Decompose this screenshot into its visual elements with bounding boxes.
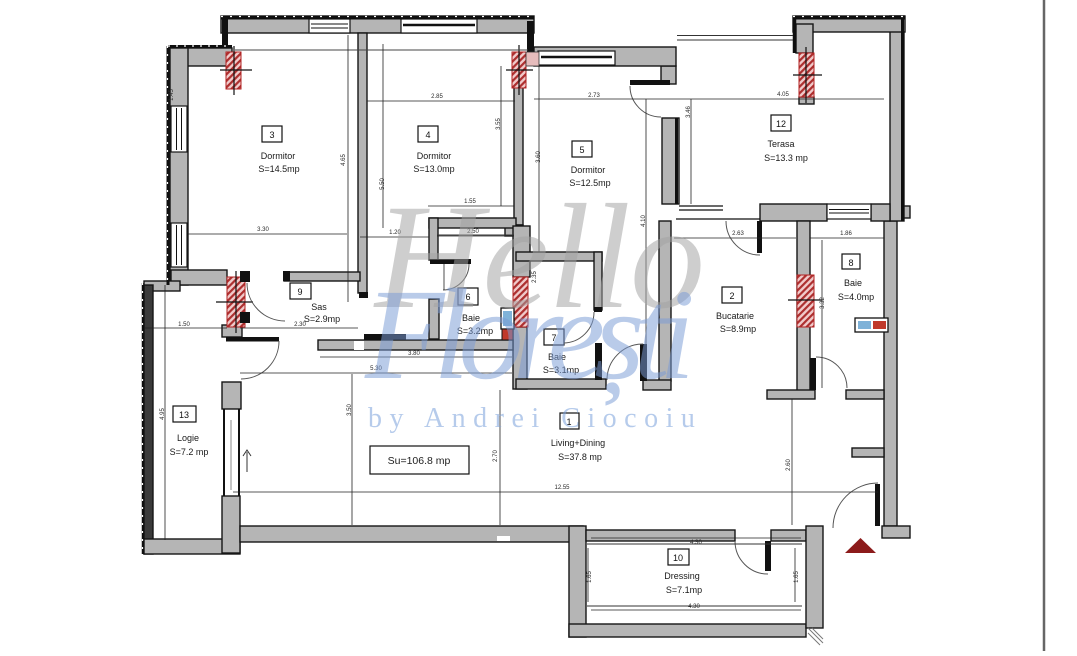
svg-text:12: 12 (776, 119, 786, 129)
svg-text:1.65: 1.65 (794, 571, 800, 583)
svg-text:2.60: 2.60 (786, 459, 792, 471)
svg-text:1.65: 1.65 (587, 571, 593, 583)
svg-text:4.95: 4.95 (160, 408, 166, 420)
svg-text:13: 13 (179, 410, 189, 420)
svg-text:Terasa: Terasa (767, 139, 794, 149)
svg-text:S=7.1mp: S=7.1mp (666, 585, 702, 595)
svg-text:2.63: 2.63 (732, 231, 744, 237)
svg-text:Logie: Logie (177, 433, 199, 443)
svg-text:Bucatarie: Bucatarie (716, 311, 754, 321)
svg-text:1.45: 1.45 (169, 89, 175, 101)
svg-text:3.60: 3.60 (536, 151, 542, 163)
svg-text:4.65: 4.65 (341, 154, 347, 166)
svg-text:S=13.0mp: S=13.0mp (413, 164, 454, 174)
svg-text:S=37.8 mp: S=37.8 mp (558, 452, 602, 462)
svg-text:by Andrei Ciocoiu: by Andrei Ciocoiu (368, 403, 702, 434)
svg-text:Dormitor: Dormitor (417, 151, 452, 161)
svg-text:3.55: 3.55 (496, 118, 502, 130)
svg-text:2.73: 2.73 (588, 93, 600, 99)
svg-text:4.30: 4.30 (688, 604, 700, 610)
svg-text:4.30: 4.30 (690, 540, 702, 546)
svg-text:3.32: 3.32 (820, 297, 826, 309)
svg-text:5: 5 (579, 145, 584, 155)
svg-text:S=4.0mp: S=4.0mp (838, 292, 874, 302)
svg-text:Su=106.8 mp: Su=106.8 mp (388, 455, 451, 467)
svg-text:12.55: 12.55 (554, 485, 570, 491)
svg-text:4: 4 (425, 130, 430, 140)
svg-text:Sas: Sas (311, 302, 327, 312)
svg-text:Baie: Baie (844, 278, 862, 288)
svg-text:3.46: 3.46 (686, 106, 692, 118)
svg-text:S=2.9mp: S=2.9mp (304, 314, 340, 324)
svg-text:2: 2 (729, 291, 734, 301)
svg-text:Dormitor: Dormitor (261, 151, 296, 161)
svg-text:9: 9 (297, 287, 302, 297)
svg-text:10: 10 (673, 553, 683, 563)
svg-text:8: 8 (848, 258, 853, 268)
svg-text:S=8.9mp: S=8.9mp (720, 324, 756, 334)
svg-text:Florești: Florești (364, 263, 695, 407)
svg-text:3: 3 (269, 130, 274, 140)
svg-text:S=7.2 mp: S=7.2 mp (170, 447, 209, 457)
svg-text:2.70: 2.70 (493, 450, 499, 462)
svg-text:Living+Dining: Living+Dining (551, 438, 605, 448)
svg-text:S=14.5mp: S=14.5mp (258, 164, 299, 174)
svg-text:4.05: 4.05 (777, 92, 789, 98)
svg-text:1.50: 1.50 (178, 322, 190, 328)
svg-text:Dressing: Dressing (664, 571, 700, 581)
svg-text:1.86: 1.86 (840, 231, 852, 237)
svg-text:2.85: 2.85 (431, 94, 443, 100)
svg-text:3.30: 3.30 (257, 227, 269, 233)
svg-text:S=13.3 mp: S=13.3 mp (764, 153, 808, 163)
svg-text:3.50: 3.50 (347, 404, 353, 416)
